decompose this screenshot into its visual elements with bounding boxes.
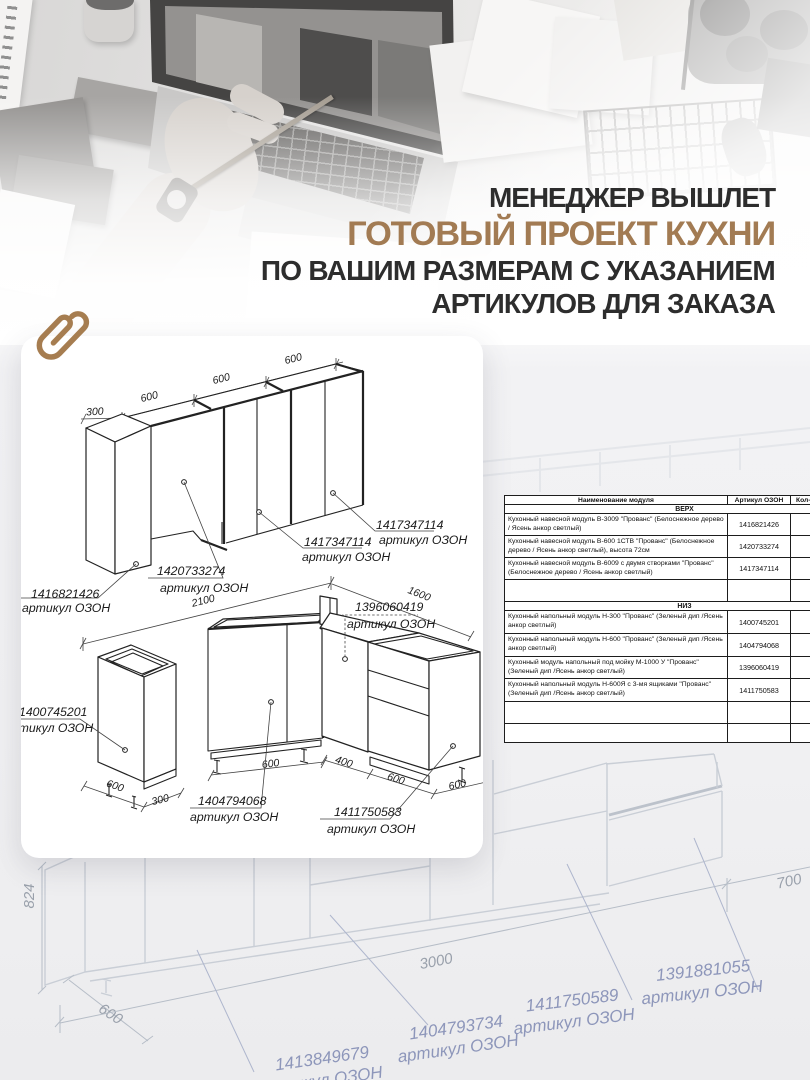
svg-text:1404794068: 1404794068 [198,794,267,808]
svg-text:600: 600 [139,389,159,405]
svg-text:700: 700 [775,871,804,893]
svg-text:2100: 2100 [190,592,217,610]
svg-text:1416821426: 1416821426 [31,587,100,601]
svg-text:артикул ОЗОН: артикул ОЗОН [22,601,110,615]
svg-text:артикул ОЗОН: артикул ОЗОН [379,533,467,547]
svg-text:824: 824 [21,883,38,908]
svg-text:600: 600 [386,771,406,788]
svg-text:артикул ОЗОН: артикул ОЗОН [327,822,415,836]
svg-text:600: 600 [211,371,231,387]
svg-text:артикул ОЗОН: артикул ОЗОН [160,581,248,595]
svg-text:артикул ОЗОН: артикул ОЗОН [21,721,93,735]
svg-text:1396060419: 1396060419 [355,600,424,614]
svg-text:600: 600 [448,777,468,792]
svg-text:1417347114: 1417347114 [376,518,444,532]
svg-text:1417347114: 1417347114 [304,535,372,549]
svg-text:артикул ОЗОН: артикул ОЗОН [347,617,435,631]
svg-text:600: 600 [283,351,303,367]
svg-text:1420733274: 1420733274 [157,564,226,578]
svg-text:600: 600 [105,778,126,795]
svg-text:300: 300 [86,406,104,419]
svg-text:1411750583: 1411750583 [334,805,402,819]
svg-text:3000: 3000 [418,950,455,973]
svg-text:артикул ОЗОН: артикул ОЗОН [302,550,390,564]
svg-text:1400745201: 1400745201 [21,705,87,719]
svg-text:400: 400 [334,754,354,771]
svg-text:300: 300 [150,792,170,808]
svg-text:600: 600 [261,757,280,771]
svg-text:артикул ОЗОН: артикул ОЗОН [190,810,278,824]
